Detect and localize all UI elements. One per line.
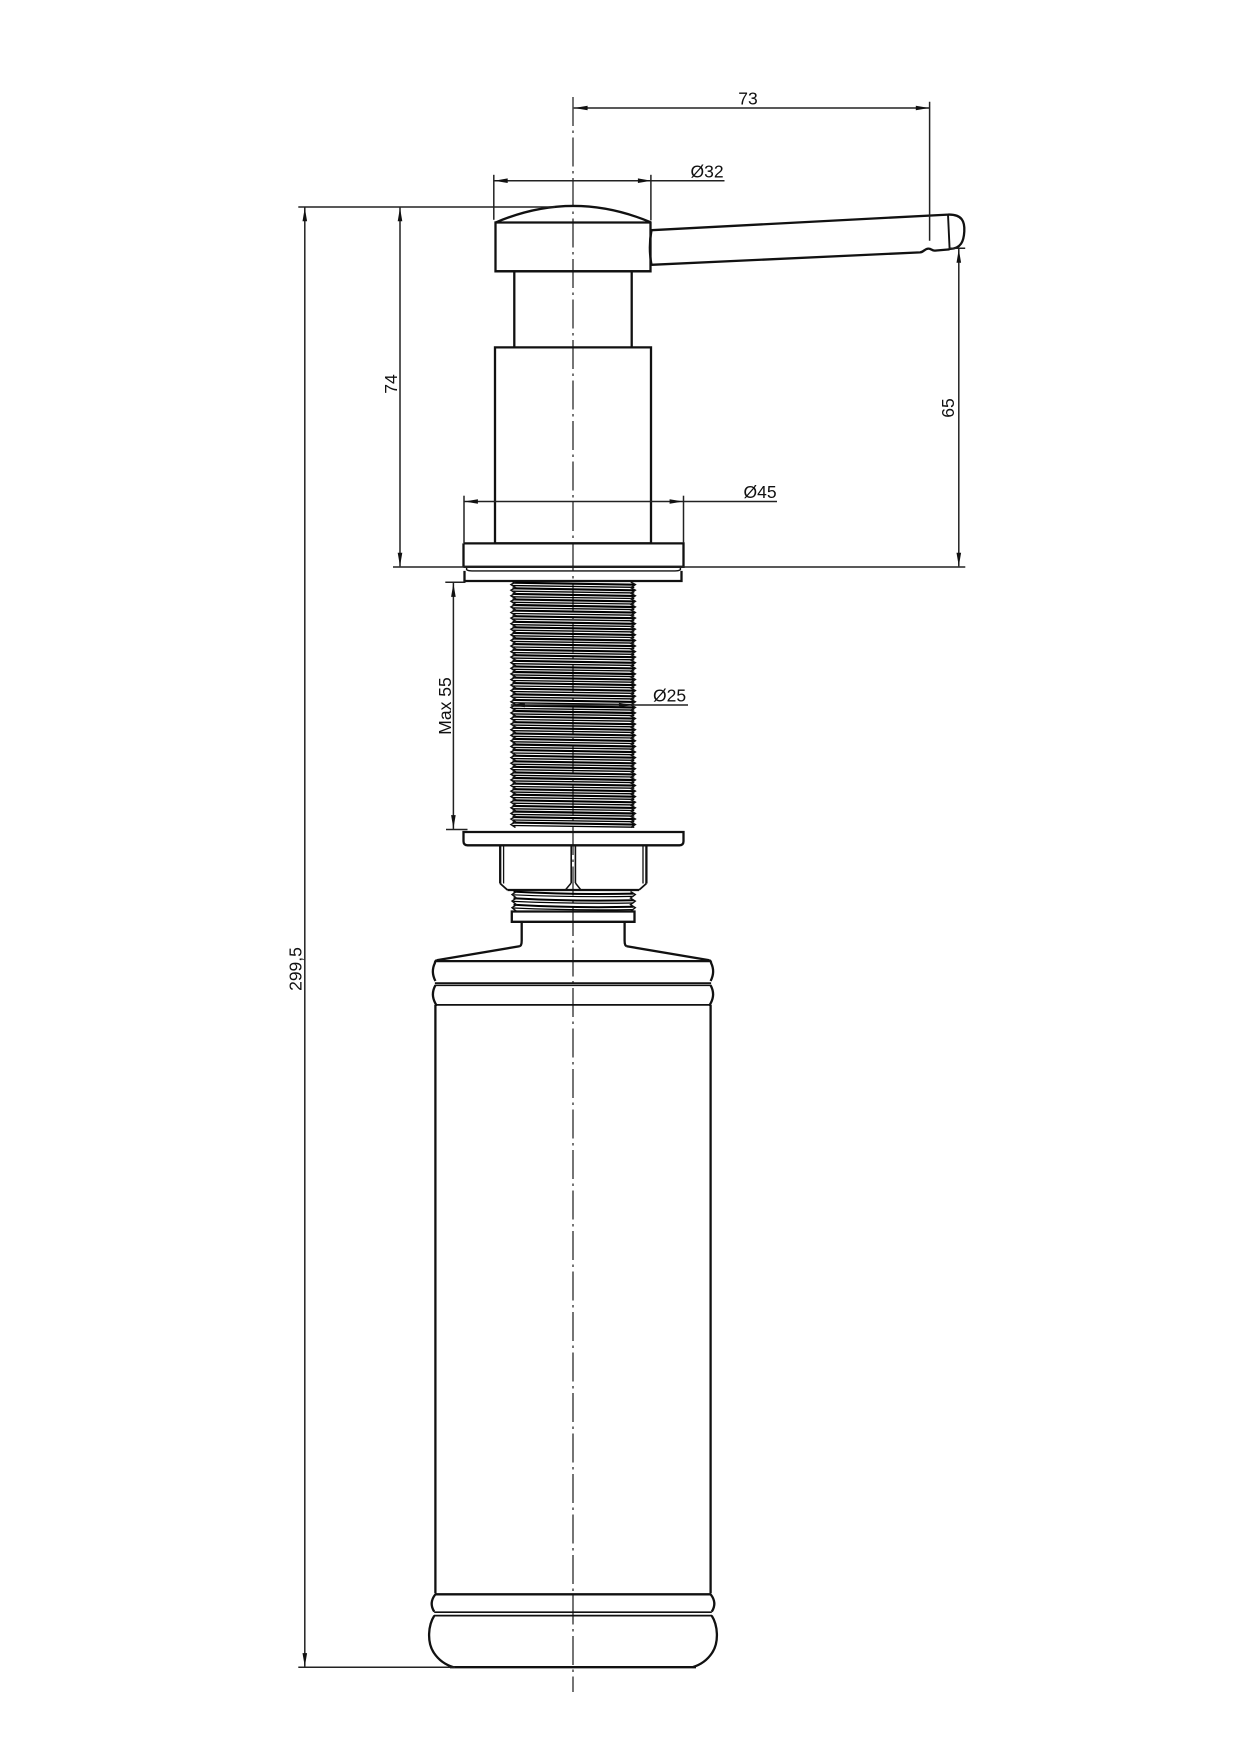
svg-text:Max 55: Max 55 bbox=[435, 677, 455, 734]
svg-text:73: 73 bbox=[738, 89, 757, 109]
svg-text:74: 74 bbox=[381, 374, 401, 394]
svg-text:Ø45: Ø45 bbox=[744, 482, 777, 502]
svg-text:Ø25: Ø25 bbox=[653, 685, 686, 705]
svg-text:299,5: 299,5 bbox=[286, 947, 306, 991]
svg-text:Ø32: Ø32 bbox=[691, 161, 724, 181]
svg-text:65: 65 bbox=[938, 398, 958, 417]
